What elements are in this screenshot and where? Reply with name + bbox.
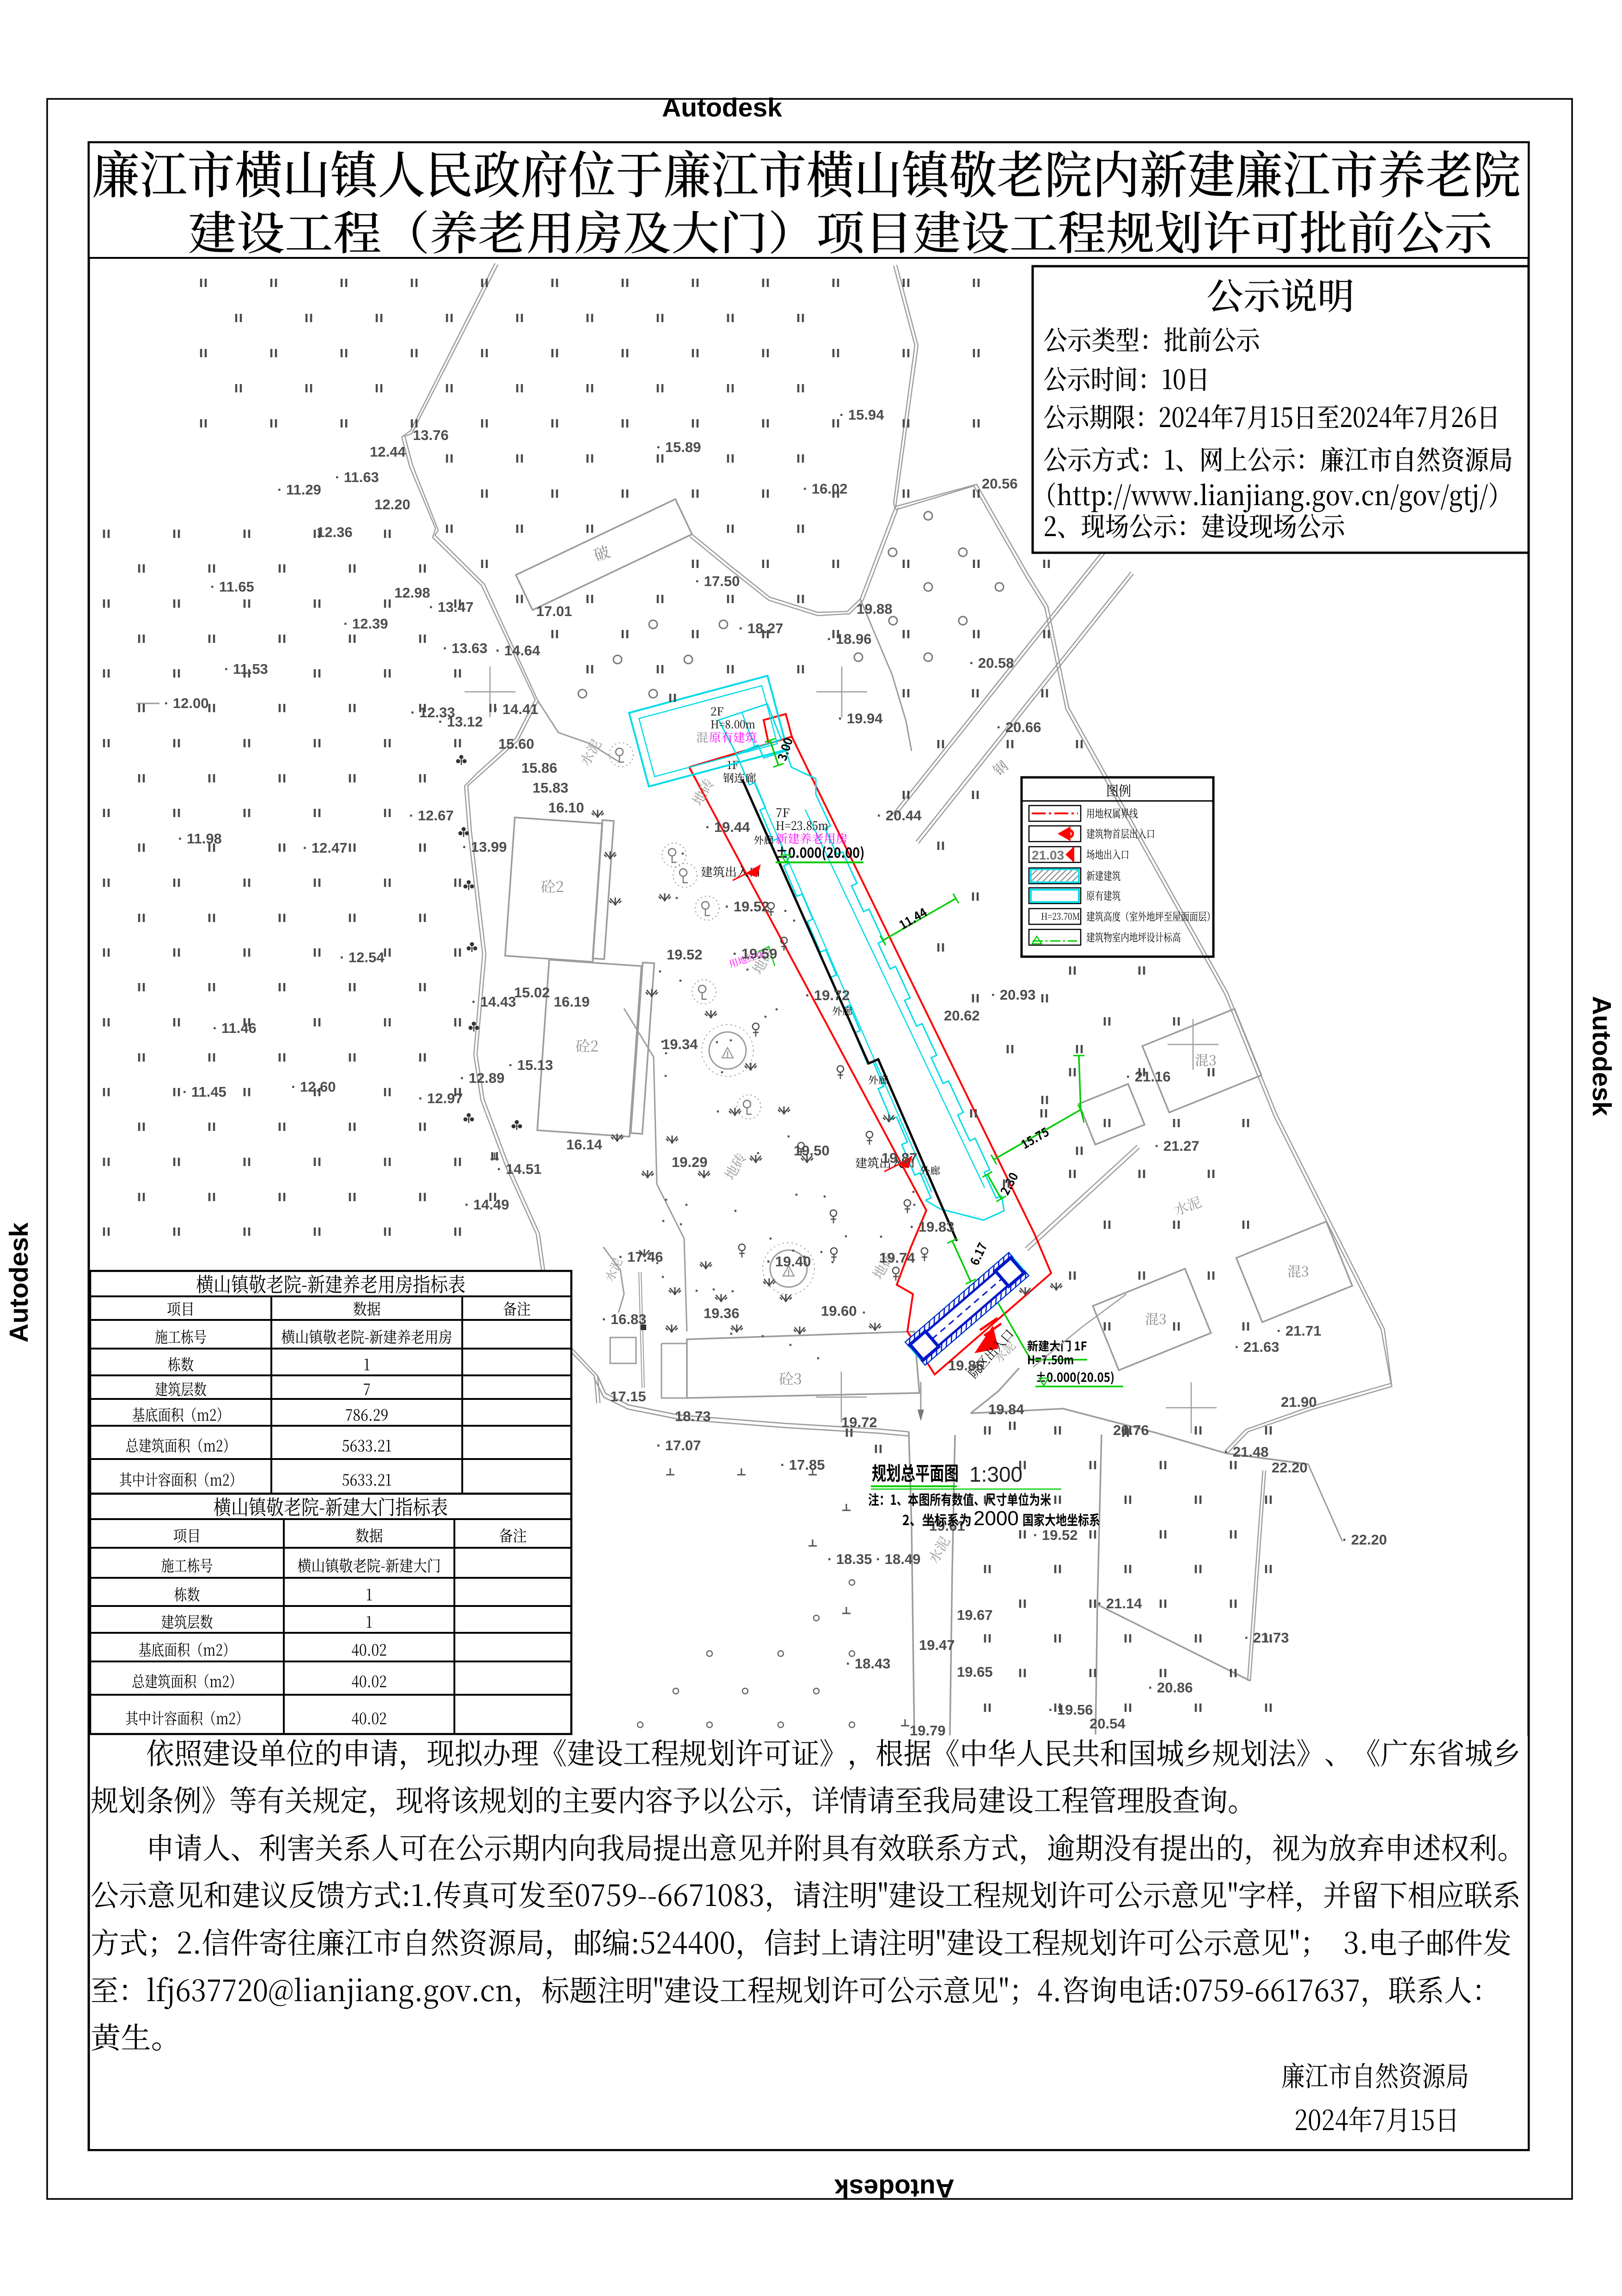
svg-text:Autodesk: Autodesk <box>834 2174 955 2203</box>
svg-text:12.36: 12.36 <box>317 524 353 540</box>
svg-text:· 19.40: · 19.40 <box>766 1253 811 1270</box>
svg-text:· 21.27: · 21.27 <box>1155 1138 1200 1154</box>
svg-text:19.47: 19.47 <box>919 1637 955 1653</box>
svg-text:· 20.93: · 20.93 <box>991 987 1036 1003</box>
svg-text:19.74: 19.74 <box>879 1250 915 1266</box>
svg-text:· 19.59: · 19.59 <box>733 946 777 962</box>
svg-text:19.84: 19.84 <box>988 1401 1024 1417</box>
svg-text:19.50: 19.50 <box>794 1142 830 1159</box>
svg-text:· 13.99: · 13.99 <box>462 839 507 855</box>
svg-text:· 21.14: · 21.14 <box>1097 1595 1142 1612</box>
svg-text:19.36: 19.36 <box>704 1305 740 1321</box>
svg-text:2000: 2000 <box>973 1507 1019 1530</box>
svg-text:· 14.49: · 14.49 <box>465 1197 509 1213</box>
svg-text:· 17.85: · 17.85 <box>780 1457 825 1473</box>
svg-text:16.19: 16.19 <box>554 994 590 1010</box>
svg-text:· 12.54: · 12.54 <box>340 949 385 965</box>
svg-text:· 20.58: · 20.58 <box>969 655 1014 671</box>
svg-text:· 11.46: · 11.46 <box>213 1020 257 1036</box>
svg-text:19.60: 19.60 <box>821 1303 857 1319</box>
svg-text:· 11.65: · 11.65 <box>210 579 254 595</box>
svg-text:18.73: 18.73 <box>675 1408 711 1424</box>
svg-text:· 17.07: · 17.07 <box>656 1437 701 1453</box>
svg-text:19.67: 19.67 <box>957 1607 993 1623</box>
svg-text:19.72: 19.72 <box>841 1414 877 1430</box>
svg-text:· 20.44: · 20.44 <box>877 807 922 824</box>
svg-text:· 11.29: · 11.29 <box>277 482 321 498</box>
svg-text:· 18.96: · 18.96 <box>827 631 872 647</box>
svg-text:· 11.45: · 11.45 <box>183 1084 226 1100</box>
svg-text:· 21.63: · 21.63 <box>1235 1339 1279 1355</box>
svg-text:· 21.73: · 21.73 <box>1244 1630 1289 1646</box>
svg-text:· 18.43: · 18.43 <box>846 1655 891 1672</box>
svg-text:· 13.47: · 13.47 <box>429 599 474 615</box>
svg-text:· 13.63: · 13.63 <box>443 640 488 656</box>
svg-text:· 19.72: · 19.72 <box>805 987 850 1003</box>
svg-text:· 11.98: · 11.98 <box>178 830 222 847</box>
svg-text:· 19.94: · 19.94 <box>838 710 883 727</box>
svg-text:· 19.44: · 19.44 <box>705 819 750 835</box>
svg-text:· 15.94: · 15.94 <box>839 407 884 423</box>
svg-text:19.65: 19.65 <box>957 1664 993 1680</box>
svg-text:· 21.71: · 21.71 <box>1277 1323 1322 1339</box>
svg-text:12.98: 12.98 <box>394 585 430 601</box>
svg-text:· 14.41: · 14.41 <box>494 701 539 717</box>
svg-text:· 12.67: · 12.67 <box>409 807 454 824</box>
svg-text:· 19.56: · 19.56 <box>1048 1702 1093 1718</box>
svg-text:· 22.20: · 22.20 <box>1342 1532 1387 1548</box>
svg-text:· 18.35: · 18.35 <box>827 1551 872 1567</box>
svg-text:· 18.49: · 18.49 <box>876 1551 921 1567</box>
svg-text:· 19.83: · 19.83 <box>910 1219 955 1235</box>
svg-text:· 15.13: · 15.13 <box>508 1057 553 1073</box>
svg-text:· 17.46: · 17.46 <box>618 1249 663 1265</box>
svg-text:· 19.87: · 19.87 <box>873 1150 918 1166</box>
svg-text:16.14: 16.14 <box>566 1136 602 1153</box>
svg-text:17.15: 17.15 <box>610 1388 646 1404</box>
svg-text:19.61: 19.61 <box>929 1518 965 1534</box>
svg-text:· 17.50: · 17.50 <box>695 573 740 589</box>
svg-text:15.86: 15.86 <box>521 760 557 776</box>
svg-text:· 14.43: · 14.43 <box>471 994 516 1010</box>
svg-text:· 19.52: · 19.52 <box>725 898 770 915</box>
svg-text:12.44: 12.44 <box>370 444 406 460</box>
svg-text:· 12.97: · 12.97 <box>418 1090 463 1106</box>
svg-text:15.83: 15.83 <box>533 780 569 796</box>
svg-text:· 21.16: · 21.16 <box>1126 1069 1171 1085</box>
svg-text:13.76: 13.76 <box>413 427 449 443</box>
svg-text:Autodesk: Autodesk <box>662 93 782 122</box>
svg-text:· 18.27: · 18.27 <box>739 620 783 636</box>
svg-text:22.20: 22.20 <box>1272 1459 1308 1476</box>
svg-text:12.20: 12.20 <box>374 496 410 513</box>
svg-text:· 20.66: · 20.66 <box>997 719 1041 735</box>
svg-text:1:300: 1:300 <box>969 1462 1022 1486</box>
svg-text:19.88: 19.88 <box>857 601 893 617</box>
svg-text:20.62: 20.62 <box>944 1008 980 1024</box>
svg-text:· 19.52: · 19.52 <box>1033 1527 1078 1543</box>
svg-text:Autodesk: Autodesk <box>4 1222 34 1343</box>
svg-text:· 15.89: · 15.89 <box>656 439 701 455</box>
svg-text:· 11.63: · 11.63 <box>335 469 379 485</box>
svg-text:· 20.86: · 20.86 <box>1148 1679 1193 1696</box>
svg-text:· 21.48: · 21.48 <box>1224 1444 1269 1460</box>
svg-text:21.03: 21.03 <box>1032 848 1064 862</box>
svg-text:· 13.12: · 13.12 <box>438 714 483 730</box>
svg-text:· 14.51: · 14.51 <box>497 1161 542 1177</box>
svg-text:· 12.89: · 12.89 <box>460 1070 505 1086</box>
svg-text:19.86: 19.86 <box>948 1357 984 1374</box>
svg-text:· 12.60: · 12.60 <box>291 1079 336 1095</box>
svg-text:19.34: 19.34 <box>662 1036 698 1052</box>
svg-text:· 12.47: · 12.47 <box>303 840 348 856</box>
svg-text:15.02: 15.02 <box>514 984 550 1001</box>
svg-text:16.10: 16.10 <box>548 800 584 816</box>
svg-text:17.01: 17.01 <box>536 603 572 619</box>
svg-text:Autodesk: Autodesk <box>1587 996 1616 1116</box>
svg-text:20.56: 20.56 <box>982 476 1018 492</box>
svg-text:· 11.53: · 11.53 <box>224 661 268 677</box>
svg-text:21.90: 21.90 <box>1281 1394 1317 1410</box>
svg-text:20.54: 20.54 <box>1089 1716 1126 1732</box>
svg-text:20.76: 20.76 <box>1113 1422 1149 1438</box>
svg-text:· 16.83: · 16.83 <box>602 1311 647 1327</box>
svg-text:19.29: 19.29 <box>672 1154 708 1170</box>
svg-text:19.52: 19.52 <box>667 946 703 963</box>
svg-text:· 12.39: · 12.39 <box>343 616 388 632</box>
svg-text:· 16.02: · 16.02 <box>803 481 848 497</box>
svg-text:· 14.64: · 14.64 <box>496 642 540 659</box>
svg-text:15.60: 15.60 <box>498 736 534 752</box>
svg-text:· 12.00: · 12.00 <box>164 695 209 711</box>
